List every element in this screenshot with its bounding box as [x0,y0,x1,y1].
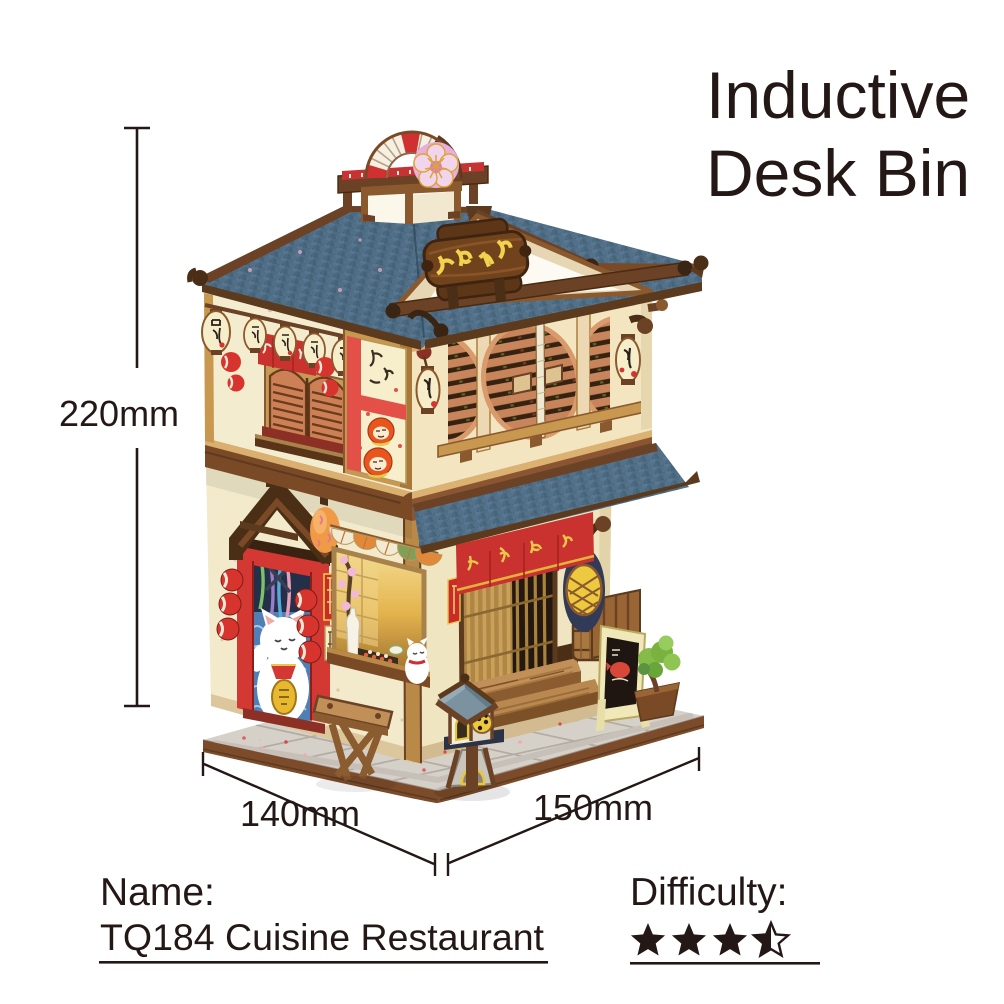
svg-text:Name:: Name: [100,871,215,914]
svg-text:220mm: 220mm [59,393,179,434]
svg-text:TQ184 Cuisine Restaurant: TQ184 Cuisine Restaurant [100,916,545,958]
svg-text:150mm: 150mm [533,787,653,828]
svg-text:140mm: 140mm [240,793,360,834]
svg-text:Inductive: Inductive [706,58,970,132]
svg-text:Difficulty:: Difficulty: [630,871,788,914]
svg-text:Desk Bin: Desk Bin [706,136,970,210]
